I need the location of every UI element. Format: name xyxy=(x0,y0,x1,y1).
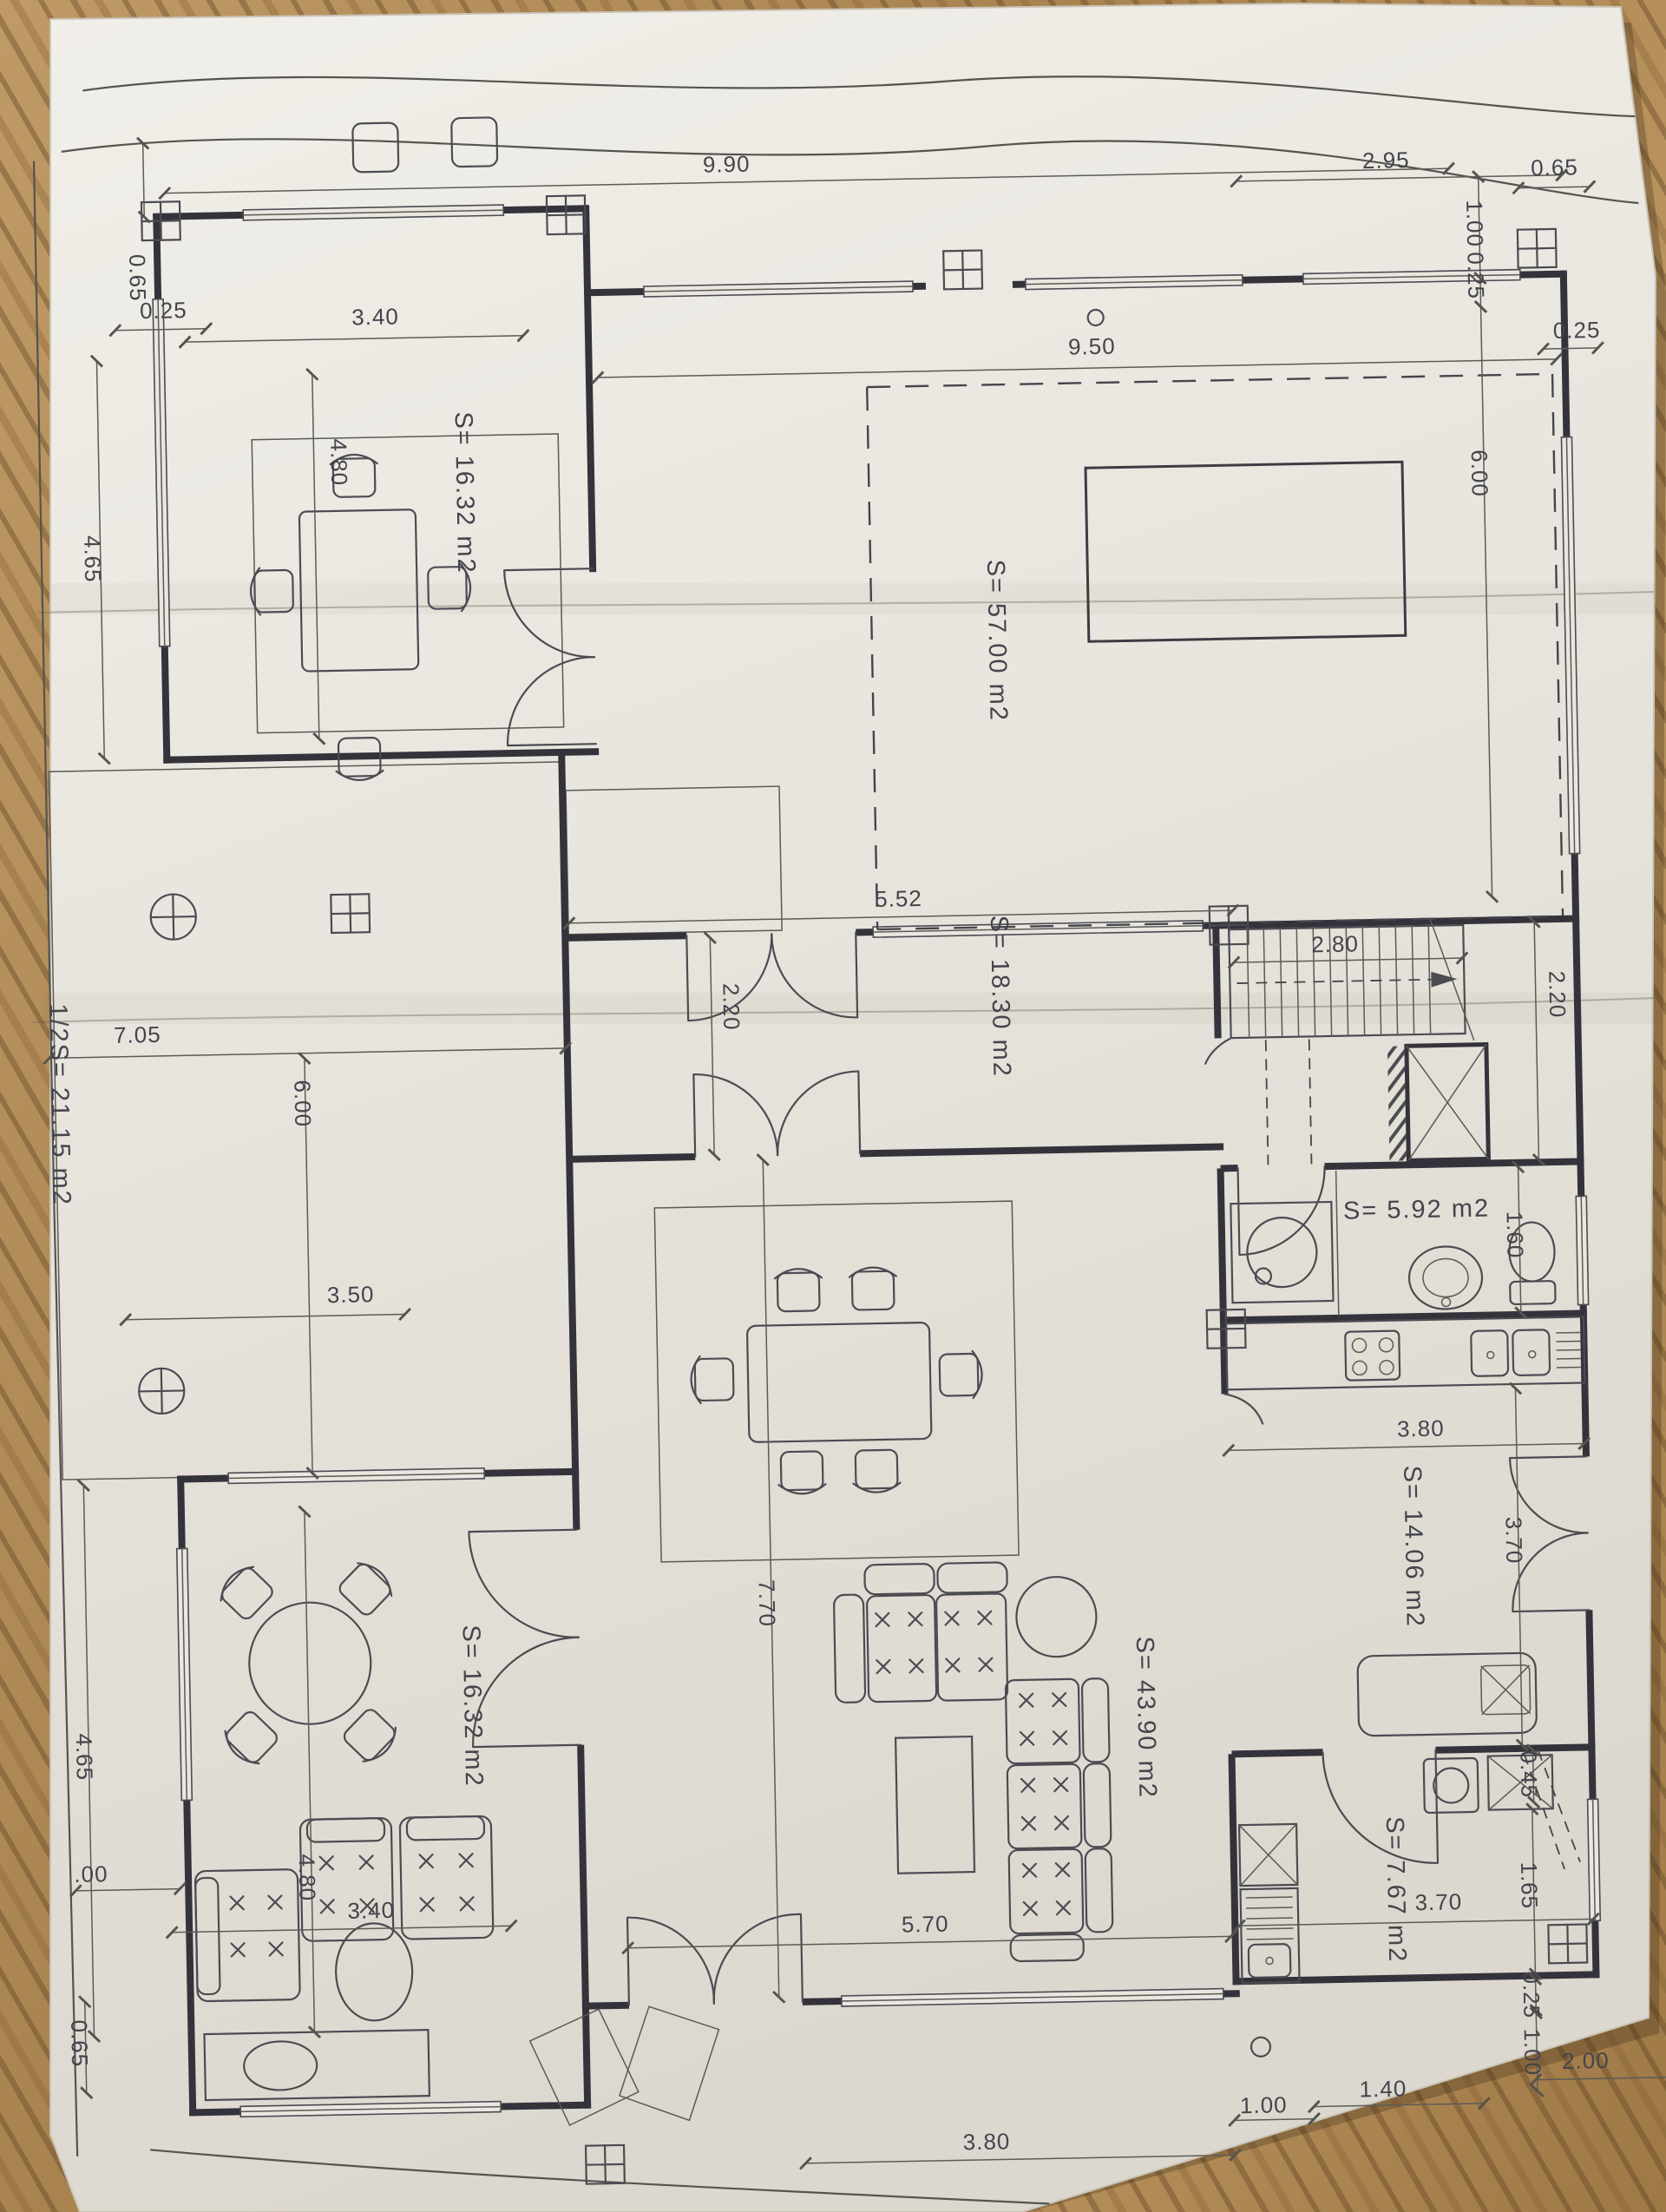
paper-sheet xyxy=(31,3,1666,2212)
room-label-bathroom: S= 5.92 m2 xyxy=(1343,1194,1491,1224)
dim-label: 3.80 xyxy=(962,2128,1010,2155)
dim-label: 1.00 xyxy=(1240,2091,1288,2118)
dim-label: 0.65 xyxy=(124,254,151,302)
room-label-pool-terrace: S= 57.00 m2 xyxy=(981,559,1013,722)
dim-label: 6.00 xyxy=(1466,450,1493,497)
dim-label: 4.65 xyxy=(79,535,106,583)
dim-label: 2.20 xyxy=(718,983,744,1031)
dim-label: 3.80 xyxy=(1397,1415,1445,1442)
dim-label: 0.65 xyxy=(1531,154,1578,181)
dim-label: 1.00 xyxy=(1461,200,1488,247)
dim-label: 2.80 xyxy=(1311,930,1359,957)
room-label-kitchen: S= 14.06 m2 xyxy=(1398,1465,1429,1628)
dim-label: 3.50 xyxy=(327,1281,375,1308)
dim-label: 1.65 xyxy=(1516,1861,1543,1909)
dim-label: 1.40 xyxy=(1359,2076,1407,2103)
dim-label: 2.20 xyxy=(1544,970,1571,1018)
room-label-entry-hall: S= 18.30 m2 xyxy=(985,915,1016,1078)
dim-label: 1.60 xyxy=(1502,1211,1529,1258)
dim-label: 7.70 xyxy=(754,1579,781,1627)
dim-label: 7.05 xyxy=(114,1021,161,1048)
dim-label: 2.00 xyxy=(1562,2047,1610,2074)
dim-label: 3.40 xyxy=(351,303,399,330)
dim-label: 4.80 xyxy=(325,438,352,486)
dim-label: 5.70 xyxy=(902,1911,949,1938)
dim-label: 3.70 xyxy=(1414,1888,1462,1915)
dim-label: 3.70 xyxy=(1500,1516,1527,1564)
room-label-pantry: S= 7.67 m2 xyxy=(1381,1816,1411,1964)
dim-label: 1.00 xyxy=(1519,2028,1546,2076)
dim-label: 6.00 xyxy=(289,1080,316,1127)
room-label-living-room: S= 43.90 m2 xyxy=(1131,1636,1162,1799)
floorplan-photo: 9.90 0.65 0.25 4.65 3.40 4.80 2.95 0.65 … xyxy=(0,0,1666,2212)
dim-label: 3.40 xyxy=(347,1897,395,1924)
dim-label: 2.95 xyxy=(1362,147,1410,174)
room-label-side-terrace: 1/2S= 21.15 m2 xyxy=(44,1003,75,1206)
dim-label: 4.80 xyxy=(294,1854,321,1901)
room-label-bottom-left-salon: S= 16.32 m2 xyxy=(456,1625,488,1788)
dim-label: 4.65 xyxy=(71,1733,98,1781)
dim-label: 0.25 xyxy=(140,297,187,324)
dim-label: 0.25 xyxy=(1552,317,1600,344)
dim-label: 9.90 xyxy=(703,151,751,178)
dim-label: 9.50 xyxy=(1068,333,1116,360)
dim-label: 0.25 xyxy=(1518,1971,1545,2018)
dim-label: .00 xyxy=(74,1861,108,1887)
dim-label: 0.65 xyxy=(66,2019,93,2067)
room-label-top-left-salon: S= 16.32 m2 xyxy=(449,411,481,574)
dim-label: 0.45 xyxy=(1515,1750,1542,1798)
dim-label: 5.52 xyxy=(875,885,922,912)
dim-label: 0.25 xyxy=(1462,252,1489,299)
